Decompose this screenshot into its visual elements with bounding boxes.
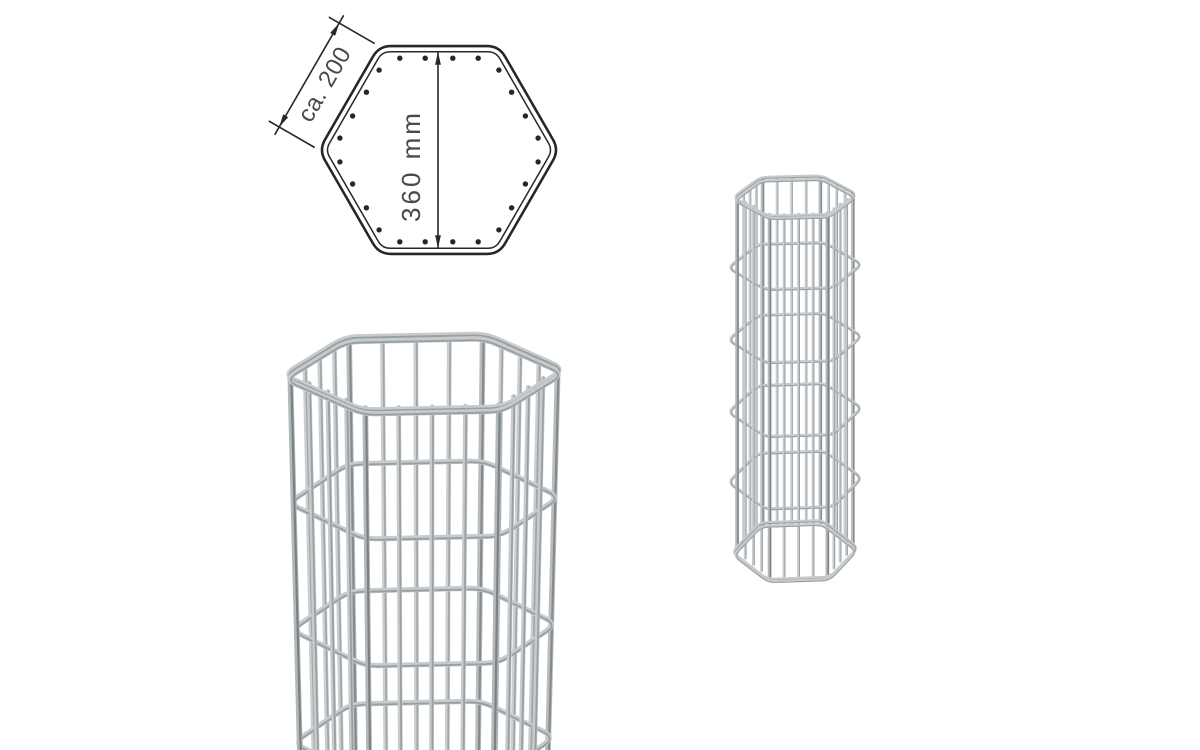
wire-dot [535, 135, 540, 140]
illustration-canvas: 360 mm ca. 200 [0, 0, 1200, 750]
wire-dot [476, 239, 481, 244]
wire-dot [496, 67, 501, 72]
wire-dot [450, 56, 455, 61]
wire-dot [337, 135, 342, 140]
wire-cross-section-dots [337, 56, 541, 245]
gabion-column-detail-view [289, 334, 559, 750]
arrowhead [279, 114, 288, 127]
wire-dot [364, 90, 369, 95]
arrowhead [330, 23, 339, 36]
width-dimension-arrow [435, 52, 441, 249]
vertical-wire [520, 387, 528, 750]
wire-dot [523, 113, 528, 118]
wire-dot [509, 205, 514, 210]
wire-dot [450, 239, 455, 244]
vertical-wire-core [432, 407, 433, 750]
wire-dot [535, 159, 540, 164]
wire-dot [376, 67, 381, 72]
dimension-width-label: 360 mm [396, 110, 426, 222]
hexagon-inner-outline [328, 52, 551, 249]
hexagon-outer-outline [322, 46, 556, 254]
gabion-product-illustration: 360 mm ca. 200 [0, 0, 1200, 750]
wire-dot [350, 113, 355, 118]
dimension-edge-label: ca. 200 [293, 42, 357, 127]
arrowhead [435, 52, 441, 65]
vertical-wire-core [417, 337, 418, 750]
wire-dot [376, 227, 381, 232]
wire-dot [423, 56, 428, 61]
wire-dot [423, 239, 428, 244]
vertical-wire-core [548, 369, 559, 750]
gabion-column-full-view [731, 176, 860, 582]
wire-dot [496, 227, 501, 232]
wire-dot [364, 205, 369, 210]
wire-dot [523, 181, 528, 186]
wire-dot [337, 159, 342, 164]
arrowhead [435, 235, 441, 248]
wire-dot [397, 239, 402, 244]
wire-dot [397, 56, 402, 61]
wire-dot [509, 90, 514, 95]
wire-dot [476, 56, 481, 61]
wire-dot [350, 181, 355, 186]
